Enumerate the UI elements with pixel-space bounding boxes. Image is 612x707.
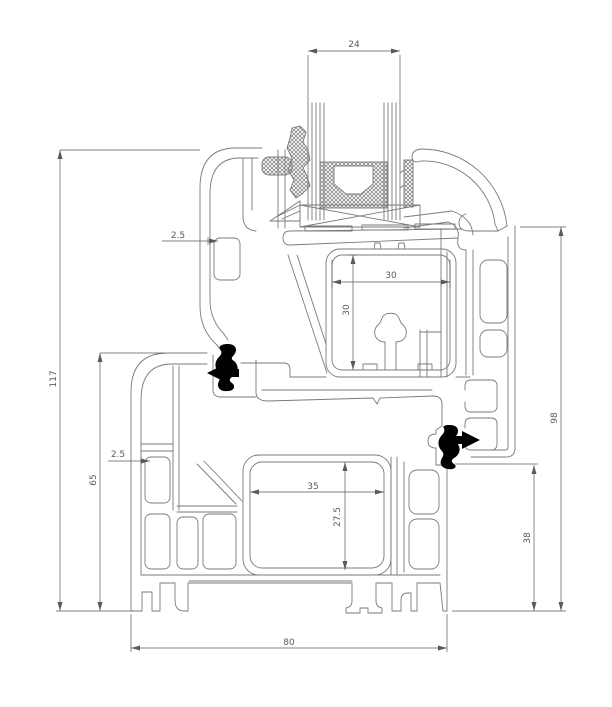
dimension-label: 24: [348, 40, 360, 50]
dimension-label: 35: [307, 482, 318, 492]
dimension-label: 30: [342, 304, 352, 316]
paper-background: [0, 0, 612, 707]
dimension-label: 117: [49, 370, 59, 387]
dimension-label: 98: [550, 412, 560, 424]
window-profile-section-drawing: 24 2.5 30 30 117 65 2.5 35 27.5 38 98 80: [0, 0, 612, 707]
technical-drawing-page: 24 2.5 30 30 117 65 2.5 35 27.5 38 98 80: [0, 0, 612, 707]
dimension-label: 30: [385, 271, 397, 281]
dimension-label: 27.5: [333, 507, 343, 527]
dimension-label: 80: [283, 638, 295, 648]
dimension-label: 65: [89, 474, 99, 485]
dimension-label: 2.5: [111, 450, 125, 460]
glazing-spacer: [320, 162, 387, 208]
dimension-label: 2.5: [171, 231, 185, 241]
dimension-label: 38: [523, 532, 533, 544]
